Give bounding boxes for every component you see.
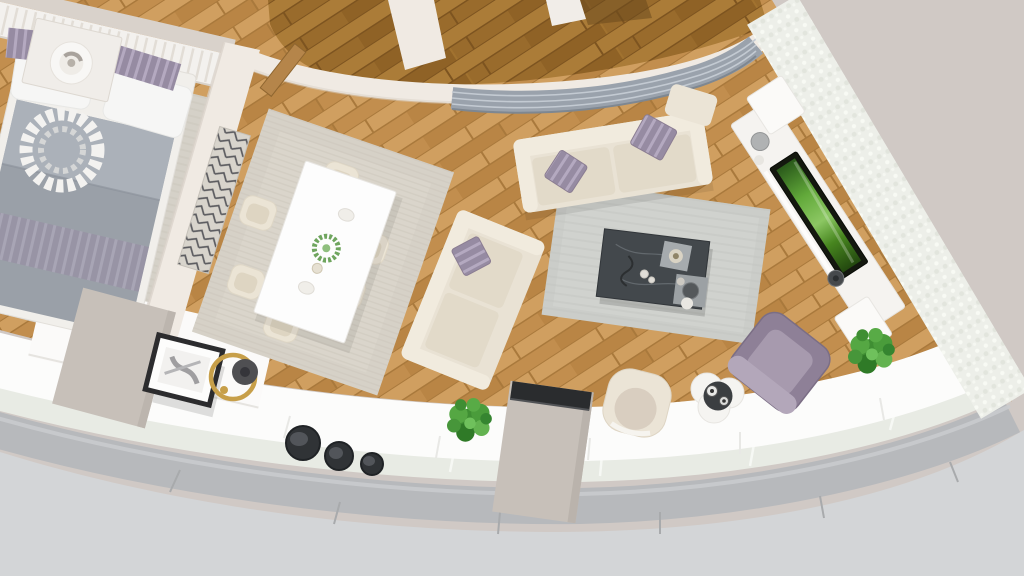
tray bbox=[704, 382, 733, 411]
decor-tray bbox=[660, 241, 692, 272]
stool bbox=[361, 453, 383, 475]
coffee-table bbox=[595, 229, 713, 317]
stool bbox=[286, 426, 320, 460]
stool bbox=[325, 442, 353, 470]
floorplan-svg bbox=[0, 0, 1024, 576]
floorplan-render bbox=[0, 0, 1024, 576]
